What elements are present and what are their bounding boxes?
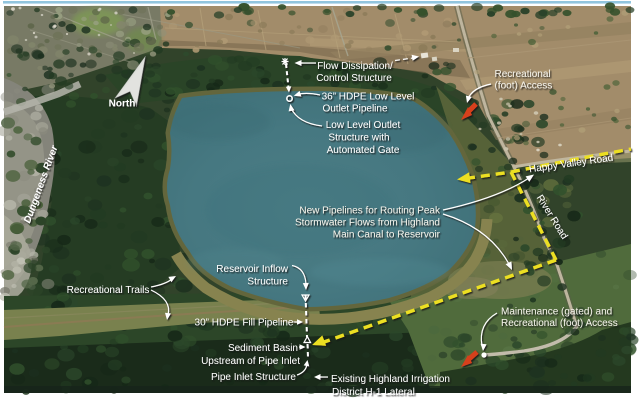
svg-text:Low Level Outlet: Low Level Outlet [326,120,401,131]
svg-text:Stormwater Flows from Highland: Stormwater Flows from Highland [295,218,440,229]
svg-text:Recreational (foot) Access: Recreational (foot) Access [501,318,618,329]
svg-text:New Pipelines for Routing Peak: New Pipelines for Routing Peak [299,206,441,217]
svg-text:(foot) Access: (foot) Access [495,81,553,92]
svg-text:Maintenance (gated) and: Maintenance (gated) and [501,307,612,318]
svg-text:Existing Highland Irrigation: Existing Highland Irrigation [331,374,450,385]
svg-text:Automated Gate: Automated Gate [327,145,400,156]
svg-text:Structure: Structure [247,277,288,288]
svg-text:Upstream of Pipe Inlet: Upstream of Pipe Inlet [201,356,300,367]
svg-text:Reservoir Inflow: Reservoir Inflow [216,264,288,275]
svg-text:Recreational: Recreational [495,69,551,80]
svg-text:36” HDPE Low Level: 36” HDPE Low Level [322,92,415,103]
svg-text:Sediment Basin: Sediment Basin [228,343,298,354]
svg-text:Structure with: Structure with [328,133,389,144]
svg-text:Pipe Inlet Structure: Pipe Inlet Structure [211,372,296,383]
svg-text:District H-1 Lateral: District H-1 Lateral [332,387,415,398]
svg-text:Outlet Pipeline: Outlet Pipeline [322,104,387,115]
svg-text:Main Canal to Reservoir: Main Canal to Reservoir [333,230,441,241]
svg-text:30” HDPE Fill Pipeline: 30” HDPE Fill Pipeline [195,318,294,329]
svg-text:North: North [109,99,136,110]
svg-text:Flow Dissipation/: Flow Dissipation/ [317,61,393,72]
svg-text:Control Structure: Control Structure [316,73,392,84]
svg-text:Recreational Trails: Recreational Trails [67,285,150,296]
